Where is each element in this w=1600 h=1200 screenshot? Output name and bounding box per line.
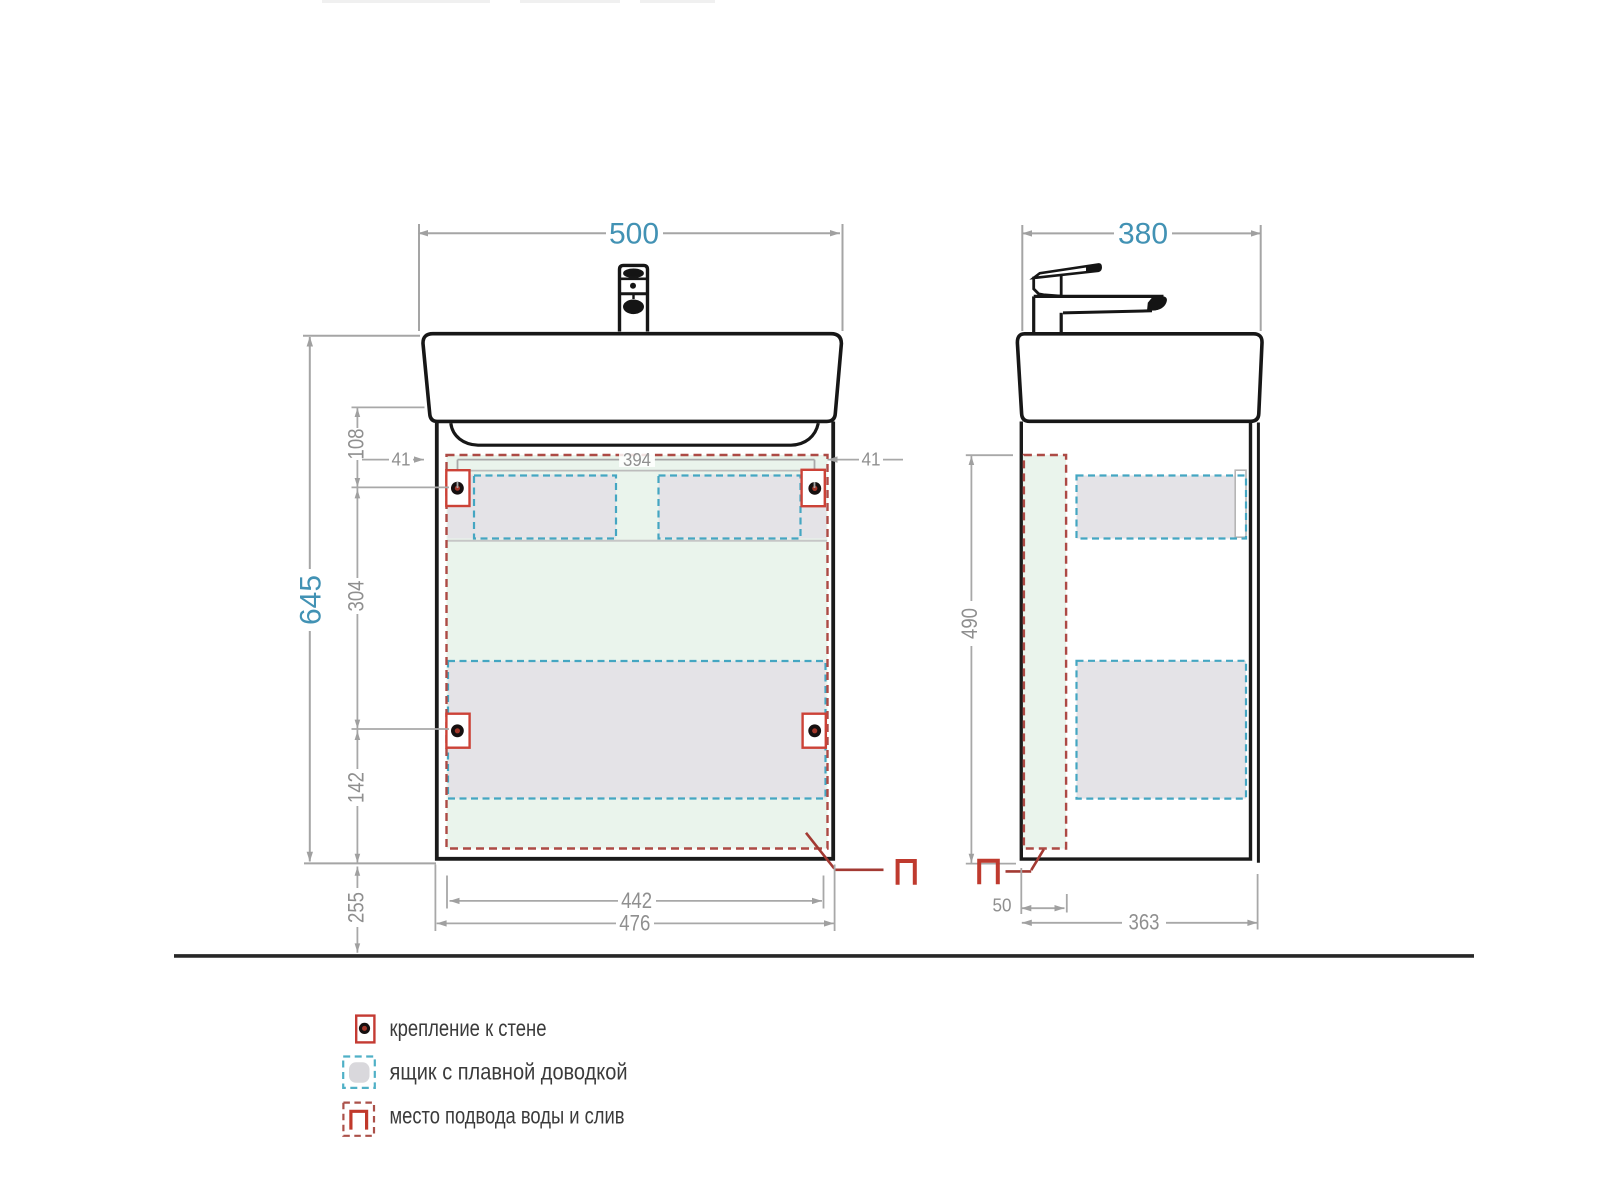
svg-text:41: 41 (392, 450, 411, 470)
svg-text:442: 442 (621, 888, 652, 913)
svg-text:394: 394 (623, 450, 651, 470)
svg-text:41: 41 (862, 450, 881, 470)
svg-text:363: 363 (1129, 910, 1160, 935)
svg-text:645: 645 (294, 575, 327, 625)
svg-text:490: 490 (957, 608, 982, 639)
svg-text:50: 50 (993, 896, 1012, 916)
svg-text:142: 142 (343, 772, 368, 803)
svg-text:108: 108 (343, 429, 368, 460)
svg-text:380: 380 (1118, 218, 1168, 251)
svg-text:500: 500 (609, 218, 659, 251)
svg-text:место подвода воды и слив: место подвода воды и слив (390, 1103, 625, 1129)
svg-text:крепление к стене: крепление к стене (390, 1015, 547, 1041)
svg-text:304: 304 (343, 581, 368, 612)
svg-text:476: 476 (619, 911, 650, 936)
svg-text:255: 255 (343, 892, 368, 923)
svg-text:ящик с плавной доводкой: ящик с плавной доводкой (390, 1059, 628, 1085)
